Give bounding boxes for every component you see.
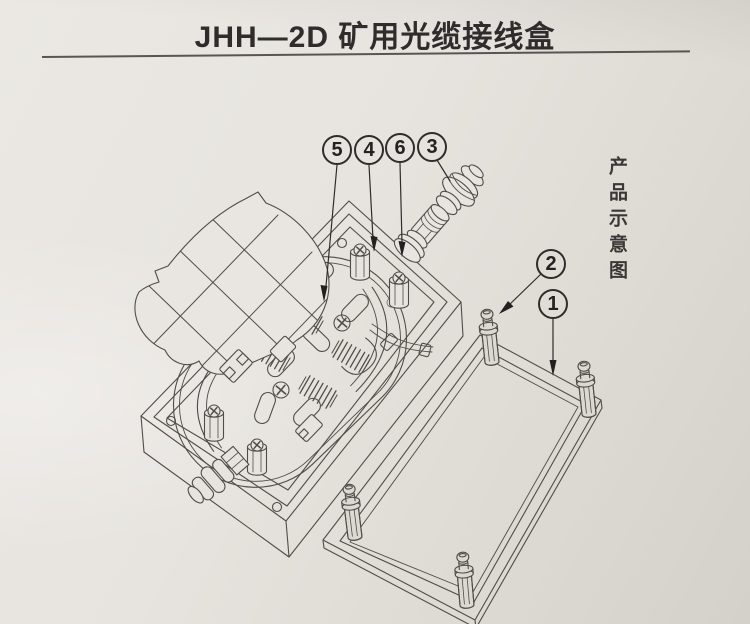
photographed-document: JHH—2D 矿用光缆接线盒 (0, 0, 750, 624)
callout-circle-1: 1 (538, 289, 568, 319)
mounting-posts (340, 308, 599, 609)
callout-number-4: 4 (363, 140, 374, 160)
callout-circle-4: 4 (354, 135, 384, 165)
callout-number-2: 2 (545, 254, 556, 274)
tray-lid (135, 192, 340, 441)
callout-circle-5: 5 (322, 135, 352, 165)
callout-circle-3: 3 (417, 132, 447, 162)
callout-number-1: 1 (547, 294, 558, 314)
callout-number-6: 6 (394, 138, 405, 158)
cable-gland-exploded (388, 155, 494, 268)
callout-number-5: 5 (331, 140, 342, 160)
callout-number-3: 3 (426, 137, 437, 157)
callout-circle-2: 2 (536, 249, 566, 279)
callout-circle-6: 6 (385, 133, 415, 163)
side-caption: 产品示意图 (603, 156, 630, 316)
exploded-view-drawing (0, 0, 750, 624)
